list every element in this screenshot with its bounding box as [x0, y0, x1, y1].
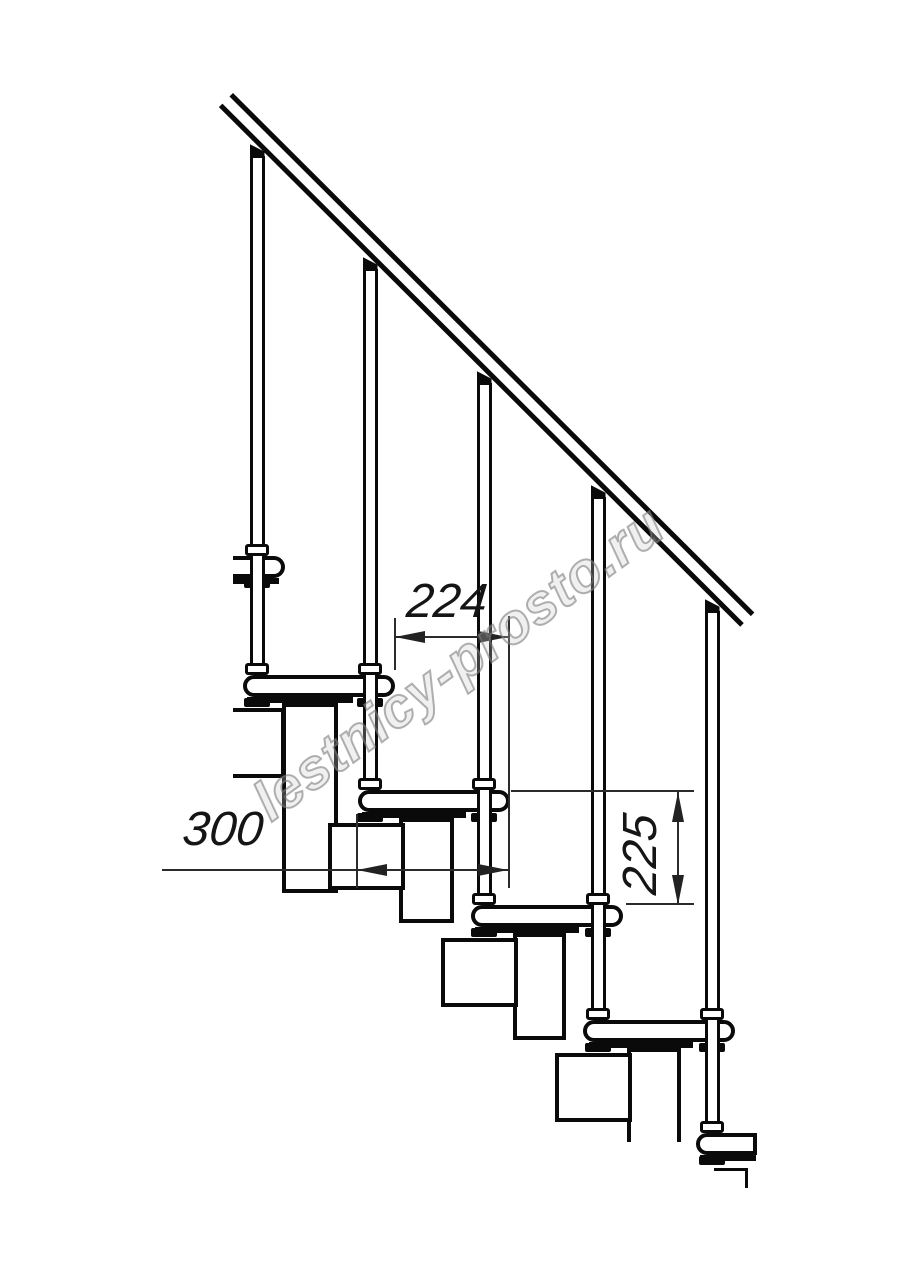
baluster-1 [250, 156, 265, 675]
dim-224-arrow-right [478, 631, 508, 643]
mount-nut [699, 1156, 725, 1165]
tread-5-partial [696, 1133, 757, 1155]
clipped-step-line [745, 1168, 748, 1188]
mount-nut [244, 698, 270, 707]
dim-225-arrow-up [672, 792, 684, 822]
stringer-module-box [441, 938, 518, 1007]
dim-300-label: 300 [165, 804, 280, 856]
baluster-collar [586, 893, 610, 905]
dim-225-arrow-down [672, 875, 684, 905]
mount-nut [471, 928, 497, 937]
baluster-collar [358, 663, 382, 675]
stringer-module-box [328, 823, 405, 890]
stringer-module-box [513, 933, 566, 1040]
dim-224-arrow-left [395, 631, 425, 643]
baluster-4 [591, 497, 606, 1020]
baluster-collar [358, 778, 382, 790]
dim-224-label: 224 [389, 576, 504, 628]
stringer-module-box [627, 1048, 681, 1142]
baluster-collar [245, 544, 269, 556]
dim-225-label: 225 [615, 796, 667, 911]
baluster-2 [363, 269, 378, 790]
dim-300-arrow-left [357, 864, 387, 876]
baluster-collar [586, 1008, 610, 1020]
dim-225-ext-top [511, 790, 694, 792]
wall-module-box [233, 708, 285, 778]
staircase-drawing: 224 300 225 lestnicy-prosto.ru [0, 0, 914, 1280]
baluster-collar [700, 1121, 724, 1133]
mount-nut [585, 1043, 611, 1052]
dim-ext-shared [508, 616, 510, 888]
dim-300-ext-left [356, 814, 358, 888]
clipped-step-line [714, 1168, 748, 1171]
baluster-collar [472, 893, 496, 905]
dim-300-line [162, 869, 510, 871]
baluster-collar [472, 778, 496, 790]
baluster-3 [477, 383, 492, 905]
baluster-collar [700, 1008, 724, 1020]
stringer-module-box [555, 1053, 632, 1122]
dim-300-arrow-right [478, 864, 508, 876]
mount-nut [357, 813, 383, 822]
baluster-5 [705, 611, 720, 1133]
baluster-collar [245, 663, 269, 675]
